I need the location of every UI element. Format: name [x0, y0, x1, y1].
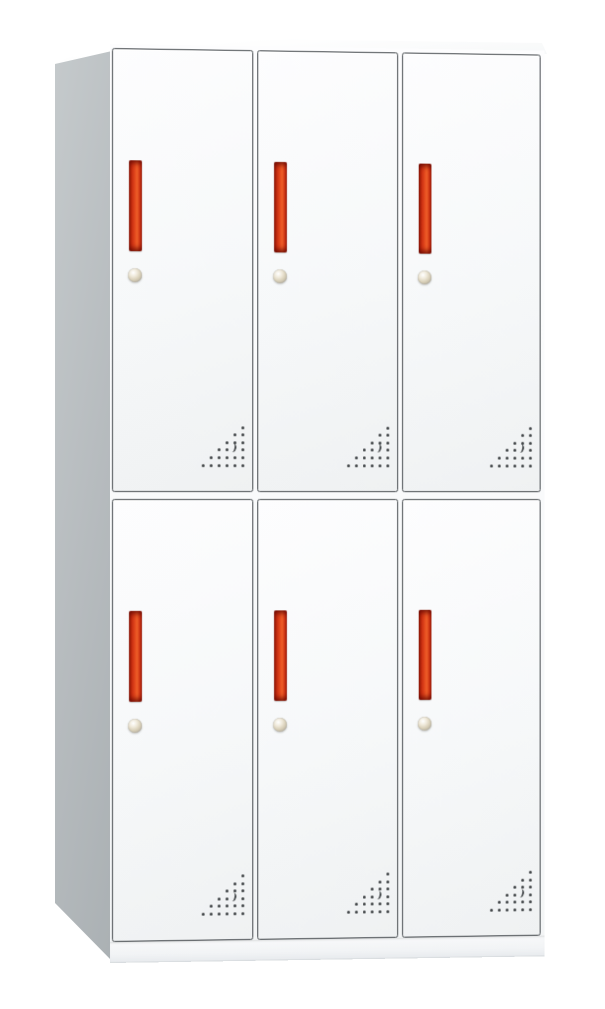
vent-dot-hole — [386, 888, 389, 891]
vent-pattern — [488, 871, 533, 915]
vent-dot-hole — [506, 901, 509, 904]
vent-pattern — [488, 426, 533, 469]
door-bottom-right — [402, 499, 541, 938]
vent-dot-hole — [386, 895, 389, 898]
vent-dot-hole — [242, 897, 245, 900]
vent-dot-hole — [513, 449, 516, 452]
vent-dot-hole — [386, 441, 389, 444]
vent-dot-hole — [210, 456, 213, 459]
vent-dot-hole — [242, 426, 245, 429]
vent-dot-hole — [386, 910, 389, 913]
vent-dot-hole — [242, 912, 245, 915]
vent-dot-hole — [242, 889, 245, 892]
vent-dot-hole — [242, 433, 245, 436]
vent-dot-hole — [506, 464, 509, 467]
vent-dot-hole — [234, 912, 237, 915]
vent-dot-hole — [242, 874, 245, 877]
vent-dot-hole — [513, 893, 516, 896]
door-handle — [418, 164, 431, 254]
vent-dot-hole — [521, 434, 524, 437]
vent-dot-hole — [370, 895, 373, 898]
door-bottom-center — [258, 499, 398, 940]
vent-dot-hole — [218, 464, 221, 467]
vent-dot-hole — [513, 464, 516, 467]
vent-dot-hole — [226, 890, 229, 893]
vent-dot-hole — [386, 449, 389, 452]
vent-dot-hole — [370, 888, 373, 891]
door-handle — [418, 609, 431, 699]
vent-dot-hole — [378, 880, 381, 883]
vent-dot-hole — [498, 909, 501, 912]
door-top-center — [258, 50, 398, 491]
vent-dot-hole — [226, 905, 229, 908]
vent-dot-hole — [521, 908, 524, 911]
vent-dot-hole — [362, 456, 365, 459]
vent-dot-hole — [370, 903, 373, 906]
vent-dot-hole — [355, 903, 358, 906]
vent-dot-hole — [242, 449, 245, 452]
vent-pattern — [200, 874, 246, 918]
vent-dot-hole — [529, 464, 532, 467]
vent-dot-hole — [506, 457, 509, 460]
vent-dot-hole — [242, 882, 245, 885]
vent-pattern — [345, 426, 390, 470]
vent-dot-hole — [355, 456, 358, 459]
vent-dot-hole — [378, 456, 381, 459]
vent-crescent-hole — [515, 888, 524, 898]
door-top-left — [112, 48, 254, 492]
vent-dot-hole — [386, 456, 389, 459]
vent-dot-hole — [218, 905, 221, 908]
vent-dot-hole — [347, 911, 350, 914]
vent-dot-hole — [521, 464, 524, 467]
vent-dot-hole — [490, 909, 493, 912]
vent-dot-hole — [529, 886, 532, 889]
door-handle — [129, 610, 142, 701]
locker-cabinet — [55, 34, 549, 966]
vent-dot-hole — [242, 456, 245, 459]
vent-dot-hole — [378, 910, 381, 913]
door-bottom-left — [112, 499, 254, 942]
cam-lock-icon — [273, 717, 287, 731]
vent-dot-hole — [386, 880, 389, 883]
vent-dot-hole — [529, 434, 532, 437]
vent-dot-hole — [506, 449, 509, 452]
vent-dot-hole — [362, 895, 365, 898]
vent-dot-hole — [529, 871, 532, 874]
vent-dot-hole — [386, 426, 389, 429]
vent-dot-hole — [370, 441, 373, 444]
vent-dot-hole — [529, 457, 532, 460]
vent-dot-hole — [513, 908, 516, 911]
vent-dot-hole — [362, 464, 365, 467]
vent-dot-hole — [234, 456, 237, 459]
vent-dot-hole — [513, 886, 516, 889]
cam-lock-icon — [128, 718, 142, 732]
vent-dot-hole — [529, 901, 532, 904]
vent-dot-hole — [529, 442, 532, 445]
vent-dot-hole — [347, 464, 350, 467]
vent-dot-hole — [242, 905, 245, 908]
vent-dot-hole — [386, 464, 389, 467]
cam-lock-icon — [417, 270, 431, 284]
vent-dot-hole — [218, 897, 221, 900]
cabinet-front-face — [110, 44, 545, 962]
vent-crescent-hole — [372, 443, 382, 453]
vent-crescent-hole — [372, 890, 382, 900]
vent-dot-hole — [498, 464, 501, 467]
door-top-right — [402, 52, 541, 491]
vent-dot-hole — [513, 901, 516, 904]
vent-dot-hole — [386, 903, 389, 906]
vent-dot-hole — [242, 441, 245, 444]
door-handle — [274, 610, 287, 701]
door-handle — [274, 162, 287, 253]
vent-dot-hole — [210, 905, 213, 908]
vent-crescent-hole — [515, 443, 524, 453]
vent-pattern — [200, 426, 246, 470]
vent-crescent-hole — [228, 891, 238, 901]
vent-crescent-hole — [228, 443, 238, 453]
vent-dot-hole — [521, 878, 524, 881]
vent-dot-hole — [386, 434, 389, 437]
vent-dot-hole — [529, 878, 532, 881]
vent-dot-hole — [521, 901, 524, 904]
vent-dot-hole — [362, 449, 365, 452]
vent-dot-hole — [506, 909, 509, 912]
vent-dot-hole — [226, 464, 229, 467]
vent-dot-hole — [513, 457, 516, 460]
vent-dot-hole — [370, 449, 373, 452]
vent-dot-hole — [226, 449, 229, 452]
vent-dot-hole — [529, 449, 532, 452]
vent-dot-hole — [513, 442, 516, 445]
vent-dot-hole — [506, 894, 509, 897]
vent-dot-hole — [234, 464, 237, 467]
vent-dot-hole — [355, 911, 358, 914]
vent-dot-hole — [521, 457, 524, 460]
vent-dot-hole — [210, 464, 213, 467]
vent-dot-hole — [362, 903, 365, 906]
vent-dot-hole — [202, 913, 205, 916]
vent-dot-hole — [234, 882, 237, 885]
vent-dot-hole — [218, 456, 221, 459]
vent-dot-hole — [370, 456, 373, 459]
vent-dot-hole — [234, 905, 237, 908]
vent-dot-hole — [202, 464, 205, 467]
vent-dot-hole — [529, 427, 532, 430]
vent-dot-hole — [498, 457, 501, 460]
door-handle — [129, 160, 142, 251]
vent-dot-hole — [210, 913, 213, 916]
vent-dot-hole — [378, 464, 381, 467]
cam-lock-icon — [273, 269, 287, 283]
vent-pattern — [345, 872, 390, 916]
vent-dot-hole — [218, 912, 221, 915]
vent-dot-hole — [218, 448, 221, 451]
vent-dot-hole — [226, 456, 229, 459]
vent-dot-hole — [355, 464, 358, 467]
vent-dot-hole — [234, 433, 237, 436]
vent-dot-hole — [529, 893, 532, 896]
cam-lock-icon — [417, 716, 431, 730]
vent-dot-hole — [378, 434, 381, 437]
vent-dot-hole — [362, 910, 365, 913]
vent-dot-hole — [490, 464, 493, 467]
vent-dot-hole — [370, 910, 373, 913]
cabinet-left-side-panel — [55, 34, 115, 966]
vent-dot-hole — [529, 908, 532, 911]
vent-dot-hole — [378, 903, 381, 906]
vent-dot-hole — [226, 912, 229, 915]
cam-lock-icon — [128, 268, 142, 282]
vent-dot-hole — [386, 873, 389, 876]
vent-dot-hole — [242, 464, 245, 467]
product-photo-background — [0, 0, 605, 1009]
doors-grid — [112, 48, 541, 942]
vent-dot-hole — [498, 901, 501, 904]
vent-dot-hole — [370, 464, 373, 467]
vent-dot-hole — [226, 441, 229, 444]
